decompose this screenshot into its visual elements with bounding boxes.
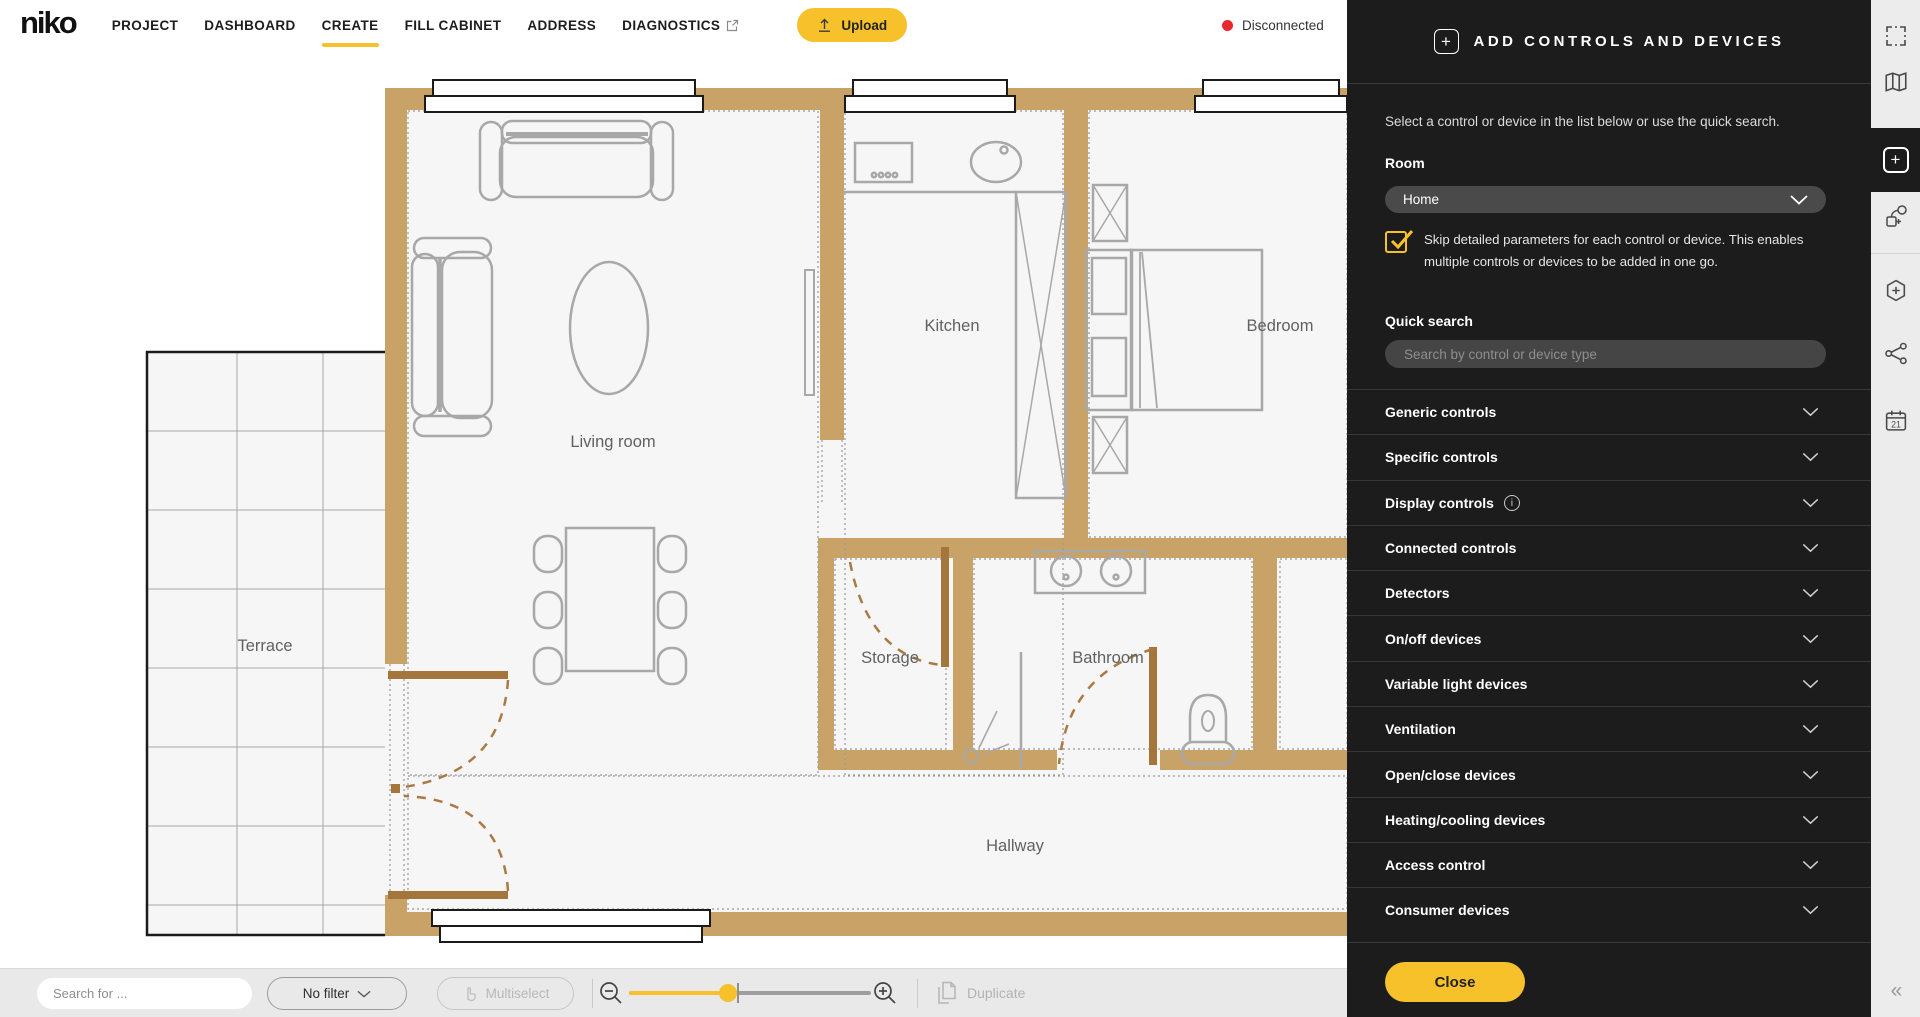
filter-label: No filter	[303, 986, 350, 1001]
label-kitchen: Kitchen	[924, 317, 979, 335]
chevron-down-icon	[1802, 453, 1819, 462]
apartment-floor	[385, 88, 1347, 936]
toolbar-divider	[592, 979, 593, 1008]
category-label: Display controls	[1385, 495, 1494, 511]
tool-sidebar: + 21 «	[1871, 0, 1920, 1017]
sidebar-divider	[1871, 253, 1920, 254]
main-nav: PROJECTDASHBOARDCREATEFILL CABINETADDRES…	[112, 0, 740, 50]
zoom-slider-fill	[629, 991, 728, 995]
chevron-down-icon	[1802, 498, 1819, 507]
chevron-down-icon	[1802, 906, 1819, 915]
calendar-icon[interactable]: 21	[1883, 408, 1908, 433]
label-terrace: Terrace	[237, 637, 292, 655]
category-row-generic-controls[interactable]: Generic controls	[1347, 389, 1871, 434]
category-label: Ventilation	[1385, 721, 1456, 737]
status-dot-icon	[1222, 20, 1233, 31]
category-row-heating-cooling-devices[interactable]: Heating/cooling devices	[1347, 797, 1871, 842]
collapse-sidebar-button[interactable]: «	[1871, 979, 1920, 1003]
multiselect-button[interactable]: Multiselect	[437, 977, 574, 1010]
chevron-down-icon	[1802, 861, 1819, 870]
category-row-variable-light-devices[interactable]: Variable light devices	[1347, 661, 1871, 706]
chevron-down-icon	[357, 990, 371, 998]
hand-pointer-icon	[462, 986, 478, 1002]
status-label: Disconnected	[1242, 18, 1324, 33]
chevron-down-icon	[1802, 408, 1819, 417]
category-row-ventilation[interactable]: Ventilation	[1347, 706, 1871, 751]
category-list: Generic controlsSpecific controlsDisplay…	[1347, 389, 1871, 933]
category-label: Consumer devices	[1385, 902, 1510, 918]
link-device-icon[interactable]	[1883, 204, 1909, 230]
category-row-specific-controls[interactable]: Specific controls	[1347, 434, 1871, 479]
category-label: Variable light devices	[1385, 676, 1527, 692]
topbar: niko PROJECTDASHBOARDCREATEFILL CABINETA…	[0, 0, 1347, 50]
add-controls-panel: + ADD CONTROLS AND DEVICES Select a cont…	[1347, 0, 1871, 1017]
upload-button[interactable]: Upload	[797, 8, 907, 42]
category-label: Access control	[1385, 857, 1485, 873]
duplicate-button[interactable]: Duplicate	[937, 981, 1025, 1005]
bottom-toolbar: No filter Multiselect Duplicate	[0, 968, 1347, 1017]
chevron-down-icon	[1802, 815, 1819, 824]
category-row-detectors[interactable]: Detectors	[1347, 570, 1871, 615]
chevron-down-icon	[1802, 679, 1819, 688]
category-label: Generic controls	[1385, 404, 1496, 420]
chevron-down-icon	[1790, 195, 1808, 205]
label-bathroom: Bathroom	[1072, 649, 1144, 667]
multiselect-label: Multiselect	[486, 986, 550, 1001]
nav-item-label: DIAGNOSTICS	[622, 18, 720, 33]
chevron-down-icon	[1802, 770, 1819, 779]
filter-dropdown[interactable]: No filter	[267, 977, 407, 1010]
chevron-down-icon	[1802, 725, 1819, 734]
skip-checkbox[interactable]	[1385, 231, 1407, 253]
label-hallway: Hallway	[986, 837, 1045, 855]
add-device-icon: +	[1883, 147, 1909, 173]
share-network-icon[interactable]	[1883, 341, 1908, 366]
nav-item-label: PROJECT	[112, 18, 179, 33]
nav-item-create[interactable]: CREATE	[322, 0, 379, 50]
nav-item-dashboard[interactable]: DASHBOARD	[204, 0, 295, 50]
external-link-icon	[726, 19, 739, 32]
category-row-display-controls[interactable]: Display controlsi	[1347, 480, 1871, 525]
nav-item-address[interactable]: ADDRESS	[527, 0, 596, 50]
map-icon[interactable]	[1883, 70, 1909, 96]
checkmark-icon	[1388, 227, 1416, 253]
upload-label: Upload	[841, 18, 887, 33]
svg-text:21: 21	[1891, 419, 1901, 429]
close-button[interactable]: Close	[1385, 962, 1525, 1002]
nav-item-label: CREATE	[322, 18, 379, 33]
zoom-in-icon[interactable]	[872, 980, 898, 1006]
category-label: Connected controls	[1385, 540, 1516, 556]
label-storage: Storage	[861, 649, 919, 667]
nav-item-label: DASHBOARD	[204, 18, 295, 33]
room-field-label: Room	[1385, 155, 1425, 171]
plan-search-input[interactable]	[37, 978, 252, 1009]
quick-search-input[interactable]	[1385, 340, 1826, 368]
panel-title: ADD CONTROLS AND DEVICES	[1474, 33, 1785, 50]
category-label: Detectors	[1385, 585, 1450, 601]
panel-header: + ADD CONTROLS AND DEVICES	[1347, 0, 1871, 84]
skip-parameters-row: Skip detailed parameters for each contro…	[1385, 229, 1837, 273]
floorplan-svg[interactable]: Living room Kitchen Bedroom Terrace Stor…	[0, 50, 1347, 968]
nav-item-label: FILL CABINET	[405, 18, 502, 33]
selection-frame-icon[interactable]	[1884, 24, 1908, 48]
label-living-room: Living room	[570, 433, 655, 451]
skip-parameters-text: Skip detailed parameters for each contro…	[1424, 232, 1803, 269]
zoom-out-icon[interactable]	[598, 980, 624, 1006]
niko-logo: niko	[20, 5, 76, 45]
panel-footer: Close	[1347, 942, 1871, 1017]
category-row-open-close-devices[interactable]: Open/close devices	[1347, 751, 1871, 796]
category-label: Open/close devices	[1385, 767, 1516, 783]
info-icon[interactable]: i	[1504, 495, 1520, 511]
category-row-consumer-devices[interactable]: Consumer devices	[1347, 887, 1871, 932]
connection-status: Disconnected	[1222, 0, 1324, 50]
duplicate-label: Duplicate	[967, 985, 1025, 1001]
category-label: Heating/cooling devices	[1385, 812, 1545, 828]
toolbar-divider	[917, 979, 918, 1008]
zoom-slider-thumb[interactable]	[719, 984, 737, 1002]
room-select[interactable]: Home	[1385, 186, 1826, 213]
upload-icon	[817, 18, 832, 33]
nav-item-diagnostics[interactable]: DIAGNOSTICS	[622, 0, 739, 50]
label-bedroom: Bedroom	[1247, 317, 1314, 335]
panel-intro: Select a control or device in the list b…	[1385, 114, 1835, 129]
quick-search-label: Quick search	[1385, 313, 1473, 329]
room-select-value: Home	[1403, 192, 1790, 207]
category-label: On/off devices	[1385, 631, 1481, 647]
sidebar-item-add-active[interactable]: +	[1871, 128, 1920, 192]
category-row-connected-controls[interactable]: Connected controls	[1347, 525, 1871, 570]
zoom-slider[interactable]	[629, 991, 871, 995]
floorplan-canvas[interactable]: Living room Kitchen Bedroom Terrace Stor…	[0, 50, 1347, 968]
nav-item-project[interactable]: PROJECT	[112, 0, 179, 50]
category-row-on-off-devices[interactable]: On/off devices	[1347, 615, 1871, 660]
plus-icon: +	[1434, 29, 1459, 54]
chevron-down-icon	[1802, 589, 1819, 598]
hexagon-add-icon[interactable]	[1883, 278, 1908, 303]
chevron-down-icon	[1802, 634, 1819, 643]
category-label: Specific controls	[1385, 449, 1498, 465]
duplicate-icon	[937, 981, 957, 1005]
zoom-slider-tick	[737, 983, 739, 1003]
category-row-access-control[interactable]: Access control	[1347, 842, 1871, 887]
chevron-down-icon	[1802, 544, 1819, 553]
nav-item-label: ADDRESS	[527, 18, 596, 33]
nav-item-fill-cabinet[interactable]: FILL CABINET	[405, 0, 502, 50]
